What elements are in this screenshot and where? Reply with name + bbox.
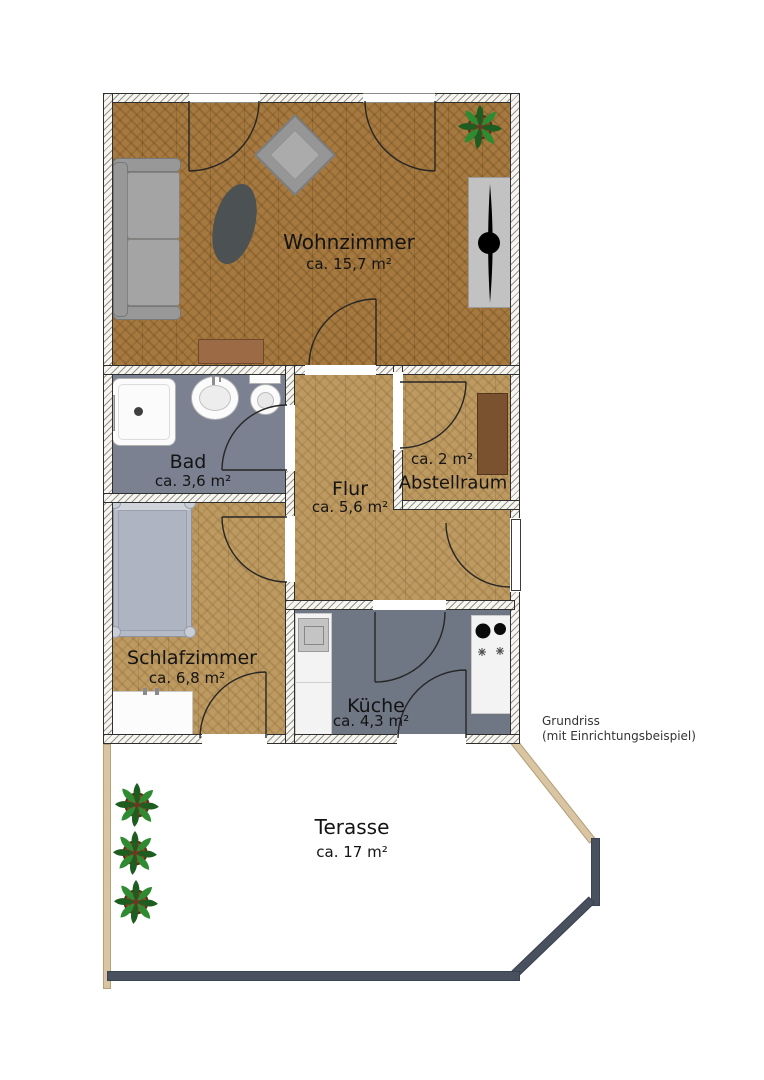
plan-note: Grundriss (mit Einrichtungsbeispiel) bbox=[542, 714, 742, 744]
terrace-door-bedroom bbox=[202, 734, 267, 744]
room-area-schlafzimmer: ca. 6,8 m² bbox=[149, 669, 225, 687]
tv-icon bbox=[469, 178, 512, 309]
door-opening-bedroom bbox=[285, 516, 295, 582]
wall-outer-right bbox=[510, 93, 520, 744]
plan-note-line1: Grundriss bbox=[542, 714, 742, 729]
room-area-abstellraum: ca. 2 m² bbox=[411, 450, 473, 468]
storage-shelf bbox=[477, 393, 508, 475]
terrace-railing-bottom bbox=[107, 971, 520, 981]
sideboard bbox=[198, 339, 264, 364]
room-area-flur: ca. 5,6 m² bbox=[312, 498, 388, 516]
room-label-schlafzimmer: Schlafzimmer bbox=[127, 647, 257, 669]
bed-post bbox=[184, 626, 196, 638]
floor-plan: Wohnzimmer ca. 15,7 m² Bad ca. 3,6 m² Fl… bbox=[0, 0, 764, 1080]
tv-sideboard bbox=[468, 177, 511, 308]
sofa-backrest bbox=[113, 162, 128, 317]
terrace-edge-left bbox=[103, 744, 111, 989]
wall-outer-top bbox=[103, 93, 520, 103]
stove-icon bbox=[472, 616, 510, 676]
bathroom-sink bbox=[191, 376, 239, 420]
wall-outer-left bbox=[103, 93, 113, 744]
room-label-abstellraum: Abstellraum bbox=[399, 473, 508, 494]
door-opening-bath bbox=[285, 405, 295, 471]
door-opening-storage bbox=[393, 372, 403, 450]
door-opening-living-hall bbox=[305, 365, 376, 375]
door-opening-kitchen bbox=[373, 600, 446, 610]
terrace-railing-diagonal bbox=[511, 897, 595, 978]
kitchen-counter-right bbox=[471, 615, 511, 714]
window-living-left bbox=[189, 93, 260, 103]
plan-note-line2: (mit Einrichtungsbeispiel) bbox=[542, 729, 742, 744]
terrace-railing-right bbox=[591, 838, 600, 906]
plant-icon bbox=[113, 781, 161, 829]
wardrobe-handle bbox=[155, 688, 159, 695]
room-area-wohnzimmer: ca. 15,7 m² bbox=[306, 255, 392, 273]
wall-bath-south bbox=[103, 493, 295, 503]
wardrobe bbox=[112, 691, 193, 736]
terrace-edge-diagonal bbox=[511, 739, 596, 844]
room-label-wohnzimmer: Wohnzimmer bbox=[283, 230, 415, 254]
room-label-flur: Flur bbox=[332, 478, 368, 500]
room-area-bad: ca. 3,6 m² bbox=[155, 472, 231, 490]
sofa-cushion bbox=[127, 239, 180, 306]
kitchen-counter-left bbox=[295, 613, 332, 736]
plant-icon bbox=[111, 829, 159, 877]
plant-icon bbox=[112, 878, 160, 926]
terrace-door-kitchen bbox=[397, 734, 466, 744]
bed-headboard bbox=[115, 502, 190, 510]
bed-mattress bbox=[118, 510, 187, 631]
plant-icon bbox=[456, 103, 504, 151]
room-area-terasse: ca. 17 m² bbox=[316, 843, 387, 861]
entry-door-leaf bbox=[511, 519, 521, 591]
wardrobe-handle bbox=[143, 688, 147, 695]
room-label-terasse: Terasse bbox=[315, 815, 390, 839]
bed bbox=[113, 500, 192, 637]
wall-storage-south bbox=[393, 500, 520, 510]
window-living-right bbox=[363, 93, 435, 103]
room-label-bad: Bad bbox=[170, 451, 207, 473]
sink-faucet bbox=[212, 375, 215, 385]
kitchen-sink-unit bbox=[298, 618, 329, 652]
toilet-bowl bbox=[250, 384, 281, 415]
room-area-kueche: ca. 4,3 m² bbox=[333, 712, 409, 730]
shower-tray bbox=[112, 378, 176, 446]
shower-drain bbox=[134, 407, 143, 416]
sofa-cushion bbox=[127, 172, 180, 239]
